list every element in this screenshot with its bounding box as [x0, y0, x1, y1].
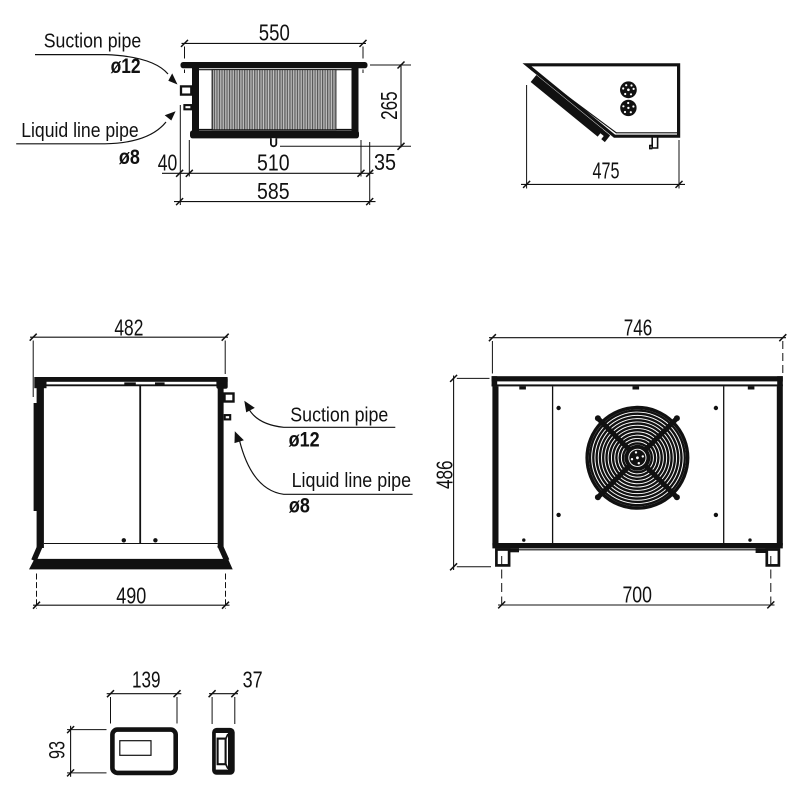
svg-text:475: 475: [593, 157, 620, 183]
svg-text:Suction pipe: Suction pipe: [44, 30, 142, 52]
svg-text:746: 746: [624, 315, 653, 341]
svg-text:700: 700: [622, 581, 652, 607]
svg-text:93: 93: [44, 741, 69, 759]
svg-text:ø12: ø12: [111, 55, 141, 78]
svg-text:490: 490: [116, 582, 146, 608]
svg-text:ø12: ø12: [289, 429, 320, 452]
svg-text:ø8: ø8: [289, 494, 310, 517]
svg-text:139: 139: [132, 667, 161, 693]
svg-text:Suction pipe: Suction pipe: [290, 404, 388, 426]
svg-text:ø8: ø8: [119, 146, 140, 169]
svg-text:585: 585: [257, 178, 290, 204]
svg-text:Liquid line pipe: Liquid line pipe: [292, 470, 412, 492]
svg-text:Liquid line pipe: Liquid line pipe: [21, 120, 139, 142]
svg-text:482: 482: [114, 314, 143, 340]
svg-text:486: 486: [432, 460, 458, 489]
svg-text:35: 35: [374, 149, 396, 175]
svg-text:40: 40: [158, 149, 178, 175]
svg-text:510: 510: [257, 150, 290, 176]
svg-text:550: 550: [259, 19, 290, 45]
svg-text:37: 37: [243, 667, 263, 693]
svg-text:265: 265: [376, 91, 402, 120]
